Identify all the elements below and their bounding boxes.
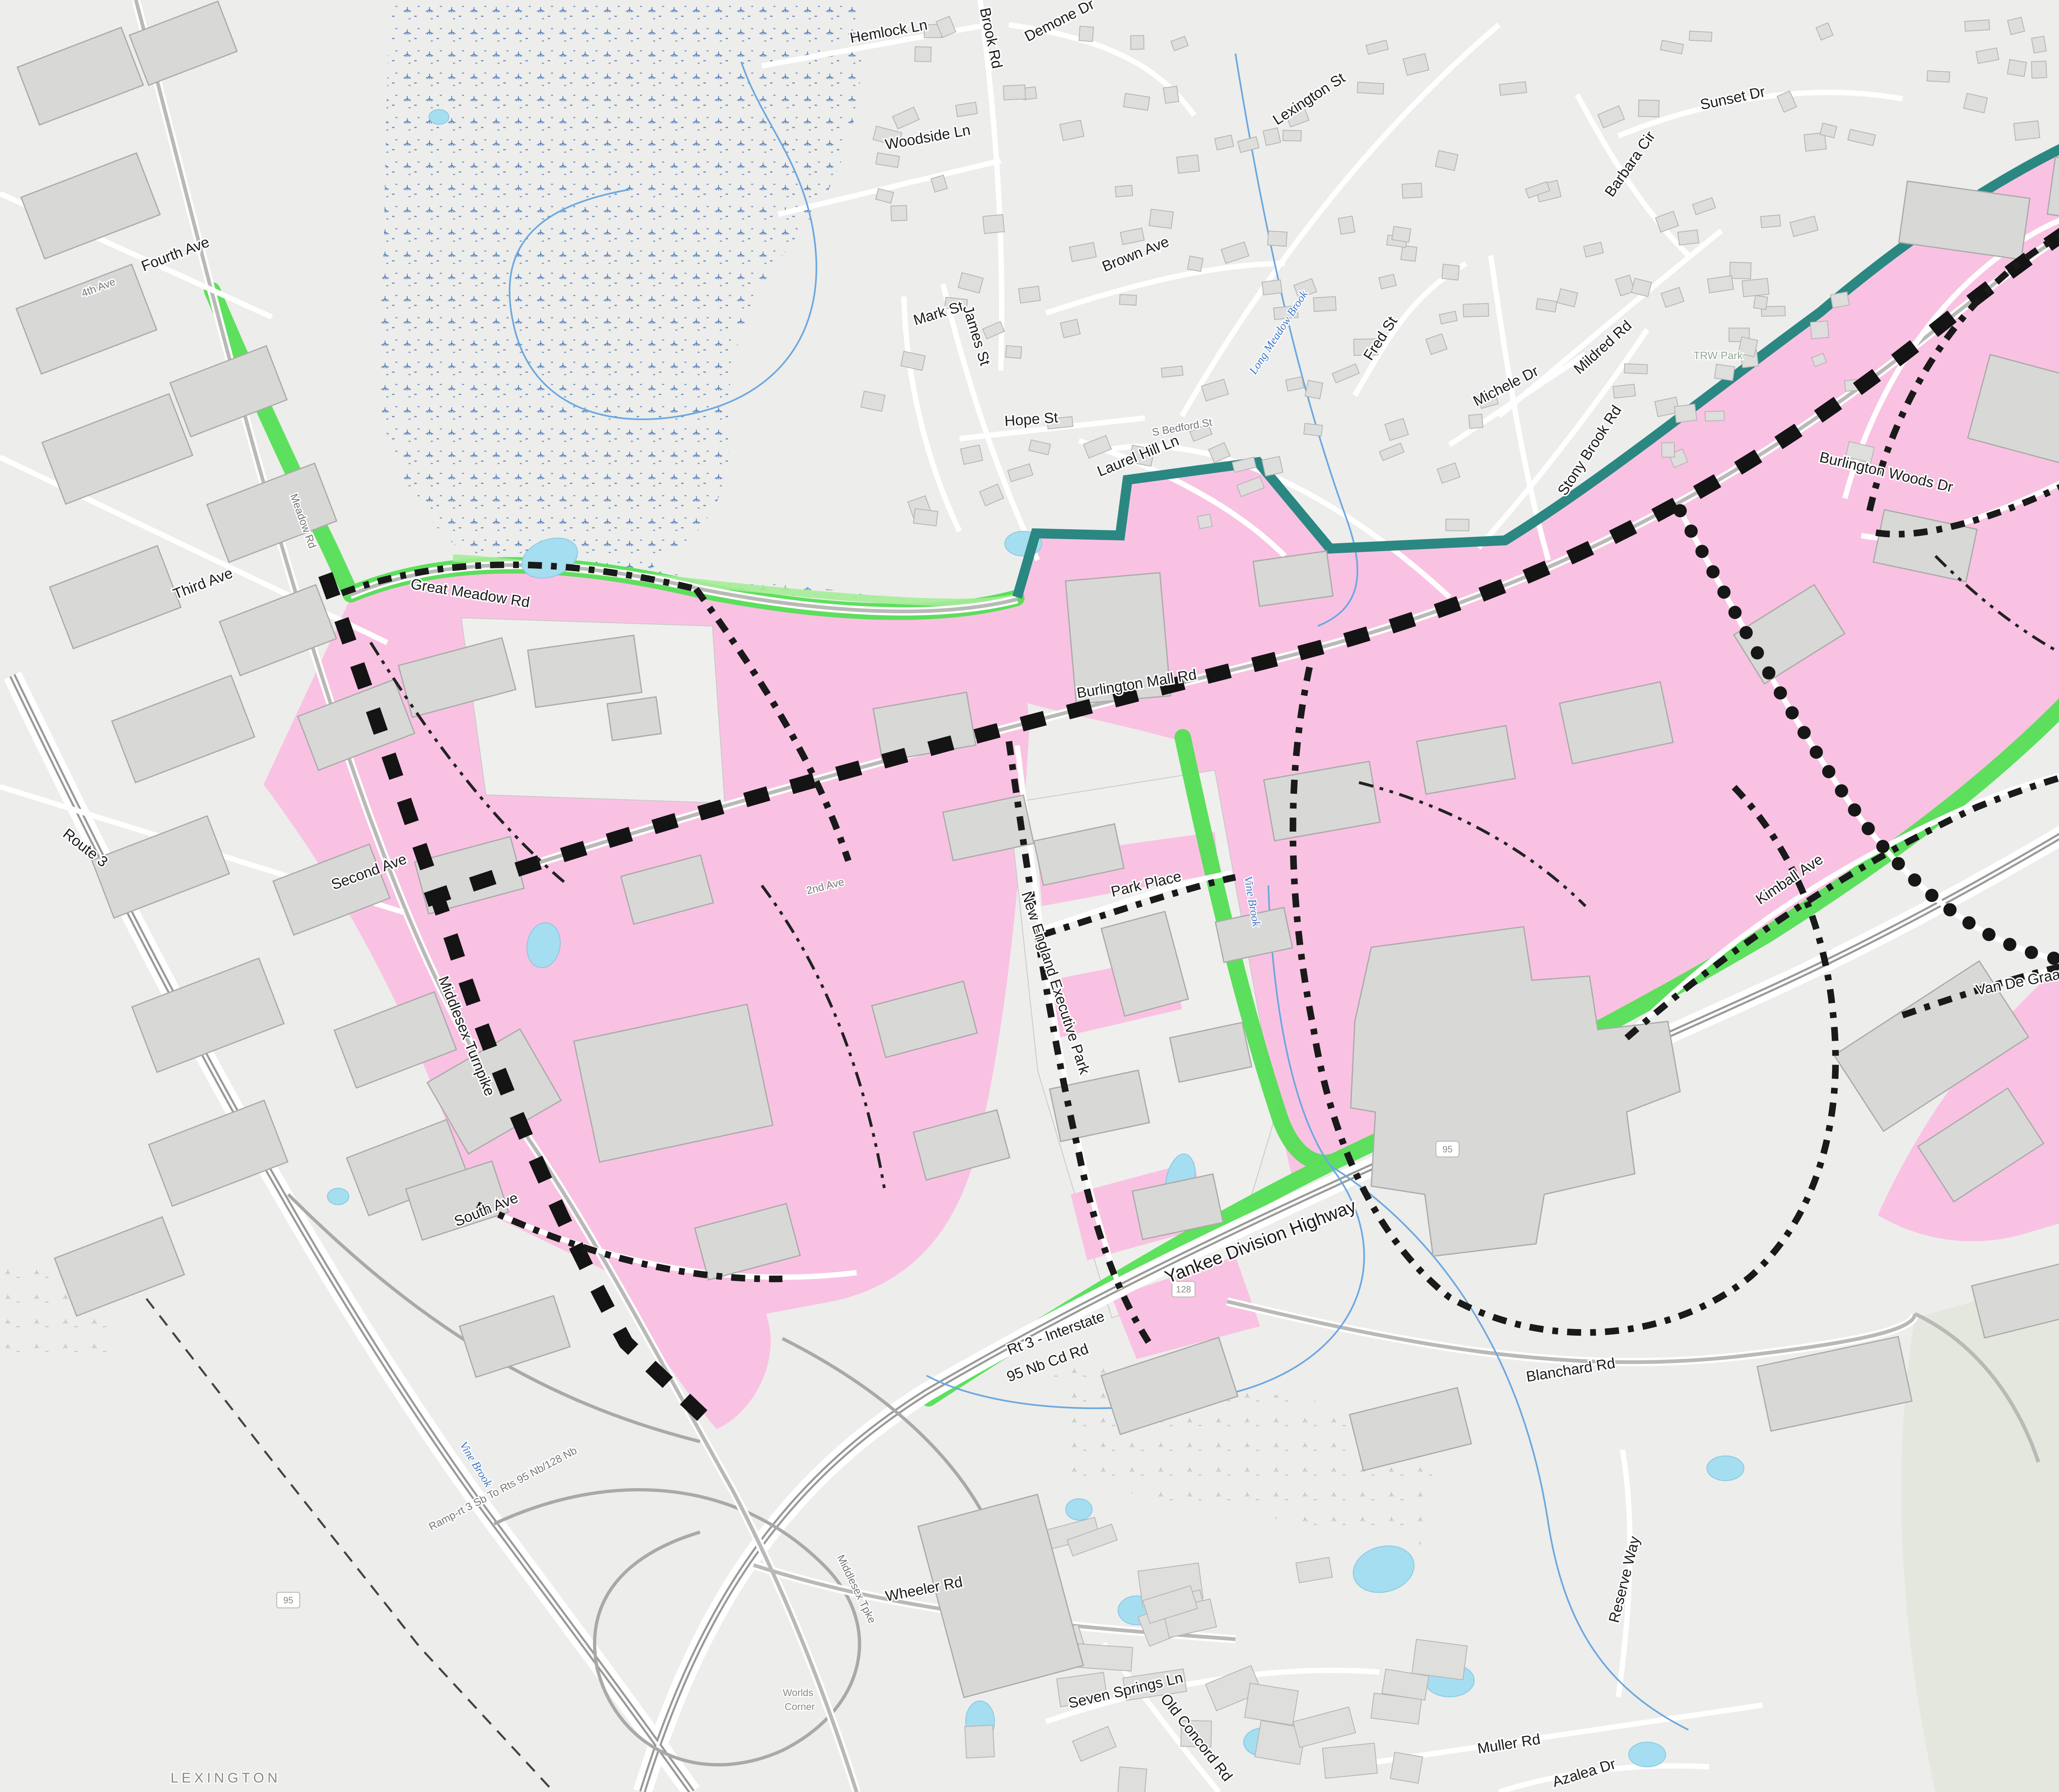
house: [1613, 384, 1635, 398]
house: [1188, 256, 1203, 271]
house: [2031, 61, 2047, 78]
house: [1244, 1683, 1298, 1725]
house: [1463, 304, 1489, 317]
svg-text:128: 128: [1176, 1284, 1191, 1294]
house: [2031, 36, 2046, 53]
house: [1662, 443, 1674, 457]
house: [1830, 292, 1849, 308]
house: [2014, 121, 2040, 140]
house: [1674, 404, 1697, 423]
house: [1115, 185, 1132, 197]
zoning-map: 9595951283A Fourth Ave4th AveThird AveRo…: [0, 0, 2059, 1792]
house: [1705, 411, 1725, 421]
house: [1305, 380, 1323, 399]
house: [1468, 414, 1483, 428]
svg-text:95: 95: [283, 1595, 293, 1605]
house: [1625, 364, 1648, 374]
house: [1120, 294, 1137, 305]
house: [1079, 26, 1093, 42]
house: [1357, 82, 1384, 94]
house: [1707, 276, 1733, 293]
house: [1304, 423, 1322, 436]
street-label: TRW Park: [1693, 349, 1743, 362]
house: [1927, 71, 1949, 82]
house: [1965, 20, 1990, 31]
house: [2008, 17, 2025, 35]
house: [1006, 346, 1022, 358]
house: [1268, 231, 1287, 246]
house: [983, 215, 1004, 234]
house: [1161, 366, 1183, 377]
house: [1003, 85, 1025, 100]
house: [1149, 209, 1173, 229]
house: [1639, 100, 1659, 117]
house: [1412, 1639, 1467, 1680]
house: [1499, 82, 1527, 95]
map-document: 9595951283A Fourth Ave4th AveThird AveRo…: [0, 0, 2059, 1792]
house: [1442, 264, 1459, 280]
building: [1253, 551, 1333, 606]
house: [1077, 1644, 1132, 1671]
route-shield: 95: [277, 1592, 300, 1608]
route-shield: 95: [1436, 1141, 1459, 1157]
house: [1392, 227, 1411, 242]
house: [1810, 321, 1829, 339]
house: [1714, 364, 1735, 381]
house: [1313, 297, 1336, 311]
house: [1689, 31, 1712, 42]
house: [913, 509, 938, 526]
house: [1019, 286, 1041, 303]
house: [1177, 155, 1199, 173]
house: [915, 47, 931, 62]
house: [1060, 319, 1080, 338]
house: [1198, 514, 1212, 528]
svg-text:95: 95: [1443, 1144, 1452, 1154]
house: [1402, 183, 1422, 199]
house: [1163, 86, 1179, 103]
house: [1390, 1752, 1423, 1783]
house: [1322, 1743, 1377, 1778]
street-label: Worlds: [783, 1687, 813, 1699]
house: [1262, 280, 1282, 295]
house: [1678, 230, 1699, 245]
house: [1117, 1767, 1146, 1792]
house: [1730, 262, 1751, 279]
house: [1131, 35, 1144, 49]
house: [1760, 215, 1781, 228]
house: [965, 1725, 994, 1758]
house: [1283, 130, 1301, 141]
house: [1753, 295, 1767, 309]
street-label: Corner: [784, 1701, 815, 1713]
house: [1263, 128, 1281, 145]
house: [1338, 216, 1355, 235]
town-label: LEXINGTON: [170, 1770, 281, 1786]
house: [1262, 456, 1283, 476]
house: [1742, 278, 1769, 297]
house: [1401, 245, 1417, 262]
house: [891, 206, 907, 221]
house: [1446, 519, 1469, 530]
building: [607, 697, 661, 741]
house: [2007, 60, 2026, 77]
